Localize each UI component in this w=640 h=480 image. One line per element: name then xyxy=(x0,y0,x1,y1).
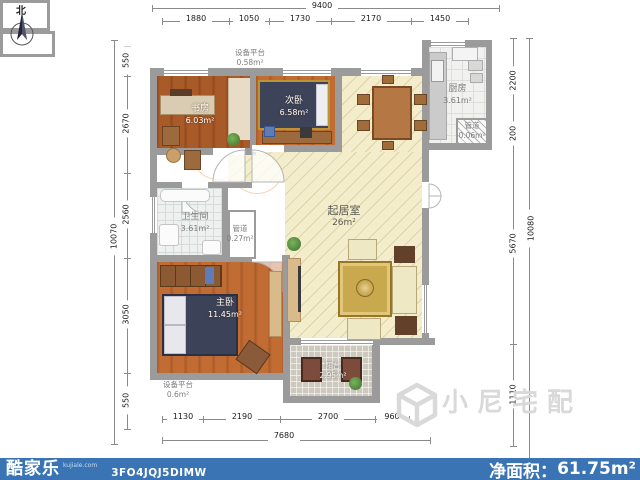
watermark-text: 小尼宅配 xyxy=(442,390,582,416)
dim-right-2: 200 xyxy=(510,121,519,145)
bathroom-sink xyxy=(159,224,179,246)
study-monitor xyxy=(170,89,192,96)
dim-top-2: 1050 xyxy=(233,15,265,24)
bedroom2-chair xyxy=(264,126,275,137)
dim-right-1: 2200 xyxy=(510,66,519,94)
net-area-value: 61.75m² xyxy=(557,459,636,479)
dim-bottom-2: 2190 xyxy=(226,413,258,422)
dim-top-1: 1880 xyxy=(180,15,212,24)
dim-bottom-total: 7680 xyxy=(268,432,300,441)
footer-bar: 酷家乐 kujiale.com 3FO4JQJ5DIMW 净面积： 61.75m… xyxy=(0,458,640,480)
net-area: 净面积： 61.75m² xyxy=(489,457,636,480)
wardrobe-clothes xyxy=(205,267,214,284)
bathtub xyxy=(160,189,210,202)
kitchen-appliance xyxy=(468,60,483,71)
dim-right-3: 5670 xyxy=(510,229,519,257)
dim-left-4: 3050 xyxy=(123,300,132,328)
toilet xyxy=(202,240,221,255)
net-area-label: 净面积： xyxy=(489,457,557,480)
side-table xyxy=(394,246,415,263)
dining-chair xyxy=(357,120,370,131)
dim-top-4: 2170 xyxy=(355,15,387,24)
bedroom2-pillows xyxy=(316,84,328,126)
balcony-plant xyxy=(349,377,362,390)
dining-table xyxy=(372,86,412,140)
dim-left-3: 2560 xyxy=(123,200,132,228)
kitchen-appliance xyxy=(470,73,483,83)
kujiale-logo: 酷家乐 xyxy=(6,461,60,478)
dim-top-5: 1450 xyxy=(424,15,456,24)
dim-top-total: 9400 xyxy=(306,2,338,11)
study-round-table xyxy=(166,148,181,163)
dim-bottom-3: 2700 xyxy=(312,413,344,422)
rug-medallion xyxy=(356,279,374,297)
study-plant xyxy=(227,133,240,146)
bedroom2-stool xyxy=(300,127,312,138)
dim-left-5: 550 xyxy=(123,386,132,414)
dim-left-total: 10070 xyxy=(111,217,120,255)
master-bench xyxy=(269,271,282,337)
watermark-cube-icon xyxy=(396,382,438,428)
dining-chair xyxy=(357,94,370,105)
armchair xyxy=(347,318,381,340)
dining-chair xyxy=(414,94,427,105)
study-armchair xyxy=(184,150,201,170)
dim-left-1: 550 xyxy=(123,46,132,74)
dim-bottom-1: 1130 xyxy=(167,413,199,422)
kujiale-domain: kujiale.com xyxy=(63,462,97,469)
dining-chair xyxy=(414,120,427,131)
plan-code: 3FO4JQJ5DIMW xyxy=(111,467,206,479)
tv xyxy=(298,266,301,312)
dim-top-3: 1730 xyxy=(284,15,316,24)
dining-chair xyxy=(382,75,394,84)
master-pillows xyxy=(164,296,186,354)
study-chair xyxy=(162,126,180,146)
living-plant xyxy=(287,237,301,251)
balcony-planter xyxy=(301,357,322,382)
kitchen-sink xyxy=(431,60,444,82)
study-desk xyxy=(160,95,215,115)
dim-left-2: 2670 xyxy=(123,109,132,137)
dim-right-total: 10080 xyxy=(528,209,537,247)
kitchen-fridge xyxy=(452,47,478,61)
dining-chair xyxy=(382,141,394,150)
floorplan-canvas: 北 xyxy=(0,0,640,480)
sofa xyxy=(392,266,417,314)
side-table xyxy=(395,316,417,335)
armchair xyxy=(348,239,377,260)
